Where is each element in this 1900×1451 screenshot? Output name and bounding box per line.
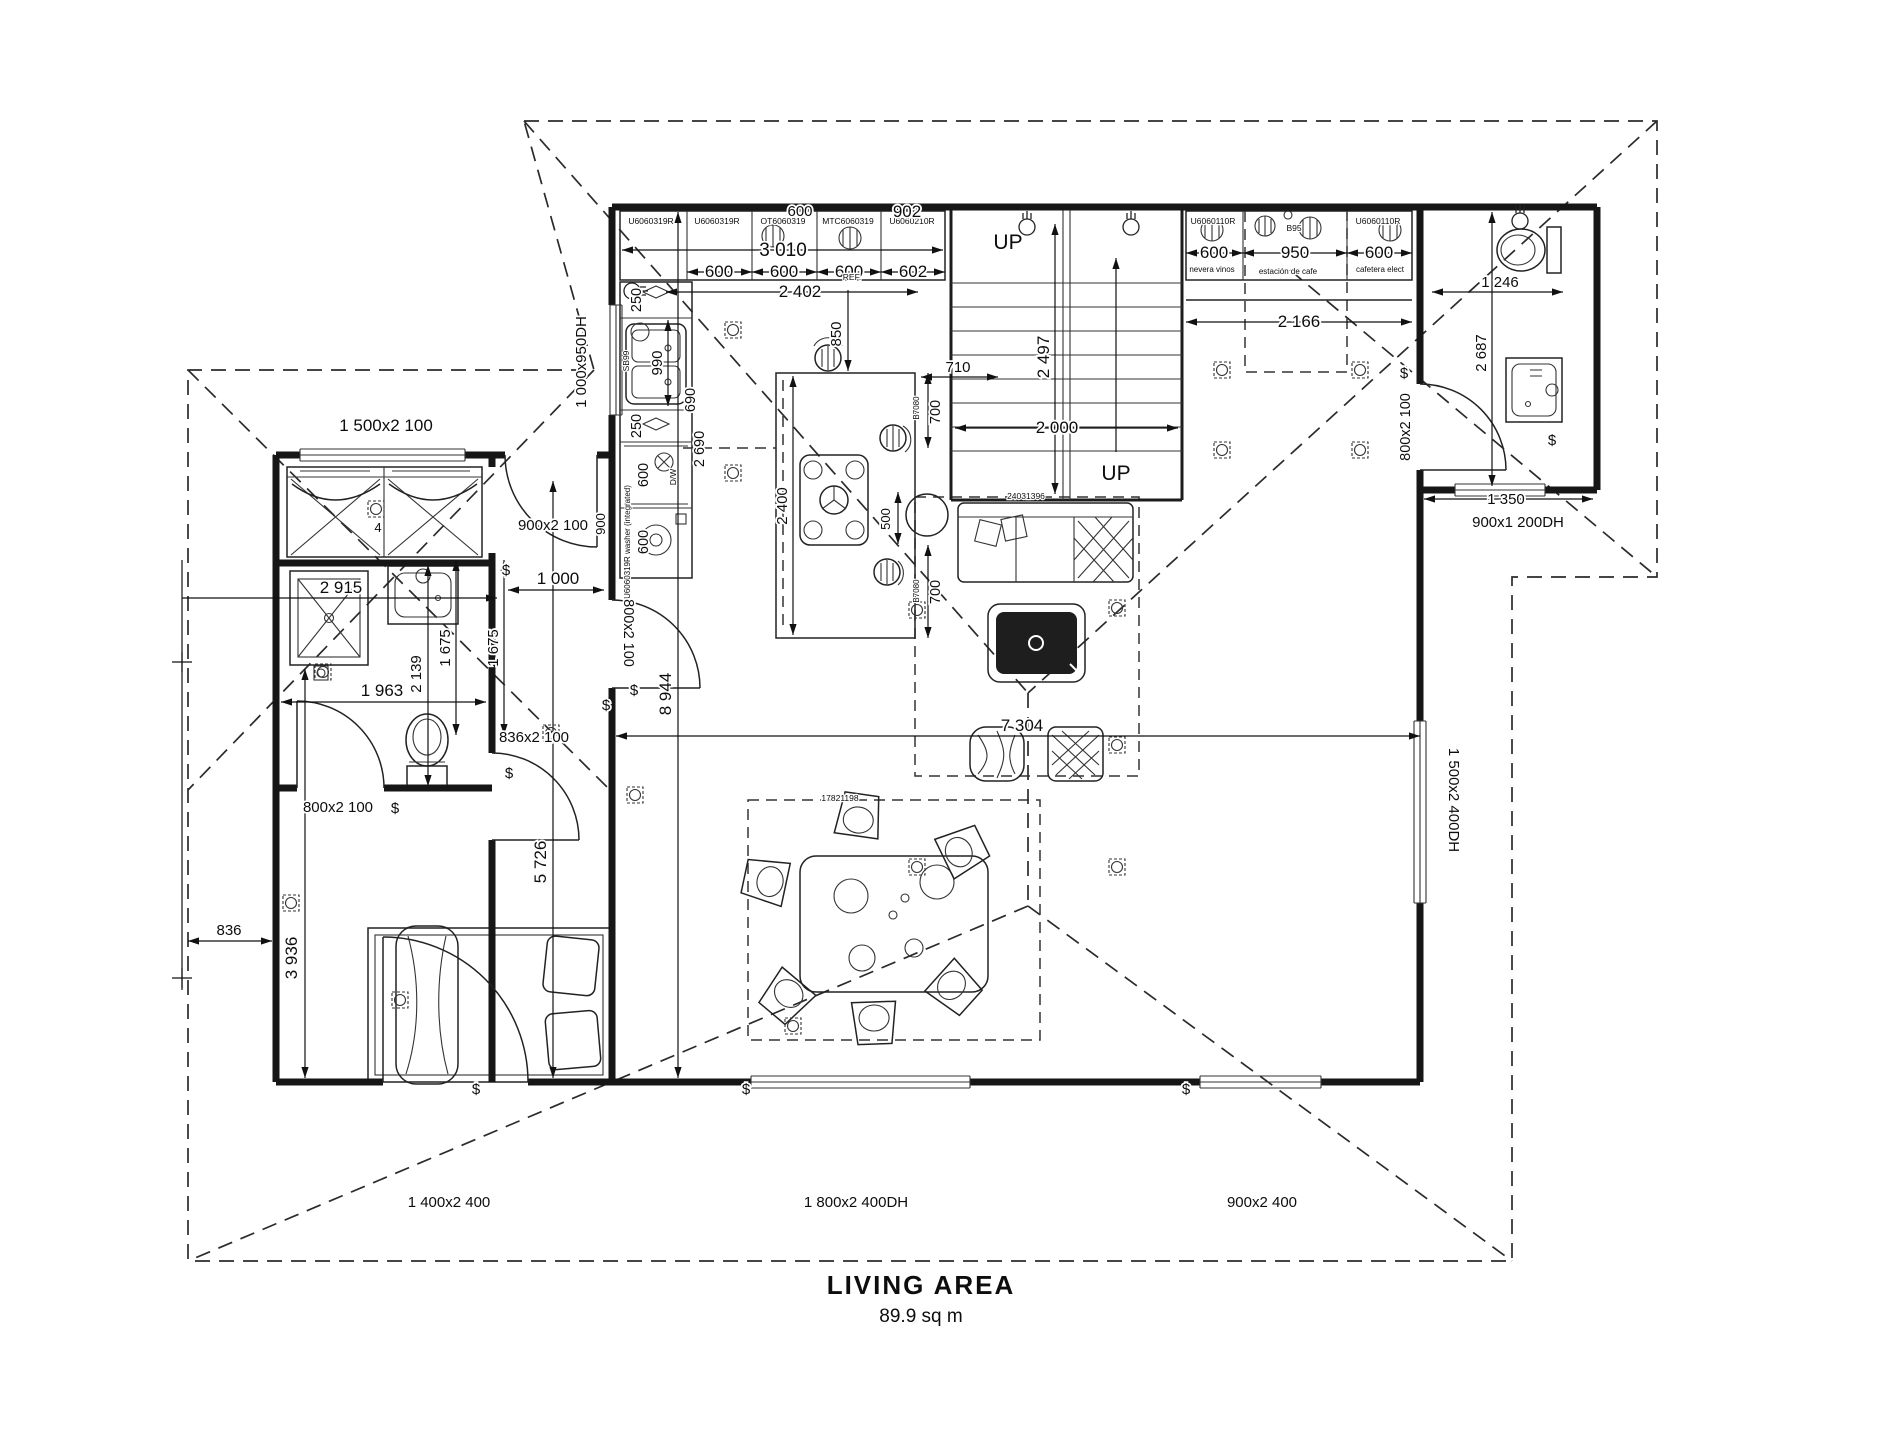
dim-600-top: 600	[787, 203, 812, 220]
window-bottom-center	[751, 1076, 970, 1088]
appliance-note: nevera vinos	[1189, 265, 1234, 274]
dining-code: 17821198	[821, 793, 858, 803]
cabinet-code: U6060319R	[628, 216, 673, 226]
dim-950: 950	[1281, 243, 1309, 262]
dim-2402: 2 402	[779, 282, 822, 301]
switch-symbol: $	[602, 697, 611, 714]
switch-symbol: $	[630, 682, 639, 699]
page-title: LIVING AREA	[827, 1270, 1016, 1300]
dim-600: 600	[770, 262, 798, 281]
switch-symbol: $	[472, 1081, 481, 1098]
hanging-clothes-icon	[292, 484, 380, 500]
cabinet-code: U6060319R	[694, 216, 739, 226]
door-ensuite	[297, 701, 384, 788]
switch-symbol: $	[1400, 365, 1409, 382]
cabinet-code: B95	[1286, 223, 1301, 233]
dining-chair	[852, 1001, 897, 1045]
bar-stool	[874, 559, 903, 585]
dim-2400: 2 400	[774, 487, 791, 525]
dim-2690: 2 690	[692, 431, 708, 467]
dim-710: 710	[945, 359, 970, 376]
dim-602: 602	[899, 262, 927, 281]
coffee-bar-cabinets	[1186, 211, 1412, 372]
dim-1000: 1 000	[537, 569, 580, 588]
sink-code: SB99	[621, 350, 631, 371]
door-label-ensuite: 800x2 100	[303, 799, 373, 816]
appliance-note: cafetera elect	[1356, 265, 1405, 274]
ensuite-toilet	[406, 714, 448, 788]
switch-symbol: $	[1548, 432, 1557, 449]
cabinet-code: MTC6060319	[822, 216, 874, 226]
washer-label: U6060319R washer (integrated)	[623, 485, 632, 599]
sofa	[958, 503, 1133, 582]
dim-2000: 2 000	[1036, 418, 1079, 437]
walls	[276, 207, 1597, 1082]
dim-700: 700	[928, 580, 944, 604]
window-label-bathroom: 900x1 200DH	[1472, 514, 1564, 531]
side-table	[906, 494, 948, 536]
dim-1963: 1 963	[361, 681, 404, 700]
island-code: B7080	[912, 579, 921, 603]
floor-plan-page: LIVING AREA 89.9 sq m UP UP 2 497 2 000 …	[0, 0, 1900, 1451]
dim-2139: 2 139	[408, 655, 425, 693]
switch-symbol: $	[502, 562, 511, 579]
dim-2166: 2 166	[1278, 312, 1321, 331]
dining-set	[740, 791, 992, 1045]
dim-990: 990	[649, 350, 666, 375]
toilet	[1497, 227, 1561, 273]
dim-900: 900	[593, 513, 608, 535]
dim-600-dw: 600	[636, 463, 652, 487]
ensuite-sink	[388, 566, 458, 624]
dim-600-washer: 600	[636, 530, 652, 554]
dim-700: 700	[928, 400, 944, 424]
pillow	[542, 935, 600, 996]
dining-chair	[925, 958, 986, 1019]
dim-600: 600	[705, 262, 733, 281]
dim-3010: 3 010	[759, 240, 807, 261]
dim-500: 500	[878, 508, 893, 530]
switch-symbol: $	[505, 765, 514, 782]
blanket	[396, 926, 458, 1084]
dining-chair	[740, 855, 790, 907]
door-label-front: 1 400x2 400	[408, 1194, 491, 1211]
dim-600: 600	[1365, 243, 1393, 262]
cabinet-code: U6060110R	[1356, 216, 1401, 226]
island-code: B7080	[912, 396, 921, 420]
stairs-up-label: UP	[1101, 462, 1130, 485]
door-label-hall: 900x2 100	[518, 517, 588, 534]
window-bottom-right	[1200, 1076, 1321, 1088]
door-label-bathroom: 800x2 100	[1398, 393, 1414, 461]
switch-symbol: $	[742, 1081, 751, 1098]
dim-1675: 1 675	[437, 629, 454, 667]
door-label-living: 800x2 100	[620, 599, 636, 667]
window-label-bottom-center: 1 800x2 400DH	[804, 1194, 908, 1211]
doors	[297, 384, 1506, 1082]
wardrobe-number: 4	[374, 520, 381, 535]
bar-stool	[880, 425, 911, 452]
door-front	[383, 937, 528, 1082]
pouf	[970, 727, 1024, 781]
bathroom-top-right	[1497, 227, 1562, 422]
dim-2497: 2 497	[1034, 336, 1053, 379]
floor-plan-drawing: LIVING AREA 89.9 sq m UP UP 2 497 2 000 …	[0, 0, 1900, 1451]
dim-1350: 1 350	[1487, 491, 1525, 508]
dim-3936: 3 936	[282, 937, 301, 980]
fridge-label: REF.	[843, 272, 861, 282]
sofa-code: 24031396	[1007, 491, 1045, 501]
switch-symbol: $	[391, 800, 400, 817]
dim-2687: 2 687	[1473, 334, 1490, 372]
appliance-note: estación de cafe	[1259, 267, 1318, 276]
dim-250: 250	[629, 414, 645, 438]
bathroom-sink	[1506, 358, 1562, 422]
dim-2915: 2 915	[320, 578, 363, 597]
window-label-kitchen: 1 000x950DH	[573, 316, 590, 408]
door-bathroom	[1420, 384, 1506, 470]
cabinet-glass-icon	[643, 418, 669, 430]
window-living-right	[1414, 721, 1426, 903]
tv-console	[988, 604, 1085, 682]
dim-836: 836	[216, 922, 241, 939]
living-furniture	[906, 494, 1133, 781]
hanging-clothes-icon	[389, 484, 477, 500]
ottoman	[1048, 727, 1103, 781]
dimension-lines	[172, 212, 1593, 1078]
stairs	[951, 207, 1182, 500]
dim-902: 902	[893, 202, 921, 221]
window-bedroom-top	[300, 449, 465, 461]
cabinet-glass-icon	[643, 286, 669, 298]
kitchen-island	[776, 338, 915, 638]
cabinet-code: U6060110R	[1191, 216, 1236, 226]
area-value: 89.9 sq m	[879, 1306, 962, 1327]
window-label-living: 1 500x2 400DH	[1445, 748, 1462, 852]
window-label-bedroom: 1 500x2 100	[339, 416, 433, 435]
dim-5726: 5 726	[531, 841, 550, 884]
window-label-bottom-right: 900x2 400	[1227, 1194, 1297, 1211]
dim-1675: 1 675	[485, 629, 502, 667]
dim-1246: 1 246	[1481, 274, 1519, 291]
dining-chair	[935, 821, 992, 879]
switch-symbol: $	[1182, 1081, 1191, 1098]
windows	[300, 305, 1545, 1088]
door-label-bedroom: 836x2 100	[499, 729, 569, 746]
dim-7304: 7 304	[1001, 716, 1044, 735]
dishwasher-label: D/W	[668, 469, 678, 486]
dim-8944: 8 944	[656, 673, 675, 716]
dim-600: 600	[1200, 243, 1228, 262]
stairs-up-label: UP	[993, 231, 1022, 254]
dim-850: 850	[828, 321, 845, 346]
dim-250: 250	[629, 288, 645, 312]
dim-690: 690	[683, 388, 699, 412]
